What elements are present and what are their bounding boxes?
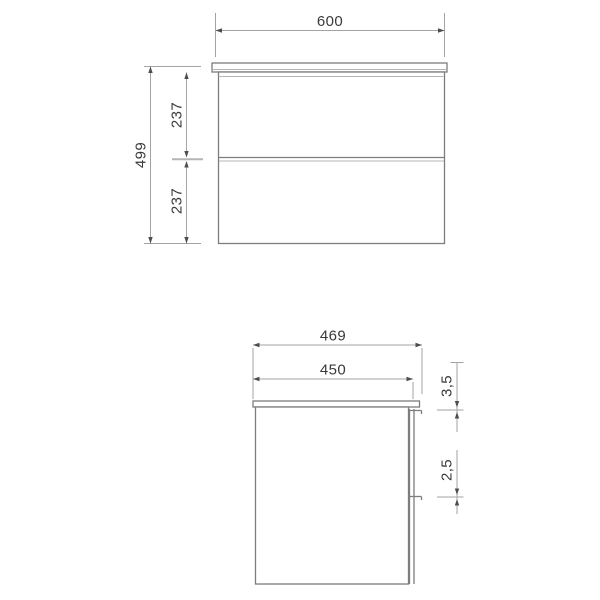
front-view: 600 499 237 237 <box>133 13 448 244</box>
dim-side-depth-body: 450 <box>253 362 413 400</box>
arrow-right-icon <box>438 28 445 32</box>
side-lower-drawer-edge <box>410 497 422 501</box>
side-depth-total-label: 469 <box>320 328 346 345</box>
dim-side-gap-top: 3,5 <box>437 362 464 432</box>
technical-drawing-page: 600 499 237 237 <box>0 0 600 600</box>
arrow-right-icon <box>416 343 423 347</box>
side-view: 469 450 3,5 2,5 <box>253 328 464 585</box>
dim-front-width: 600 <box>216 13 445 57</box>
arrow-left-icon <box>253 377 260 381</box>
dim-front-height: 499 <box>133 67 202 244</box>
drawing-canvas: 600 499 237 237 <box>0 0 600 600</box>
side-gap-drawers-label: 2,5 <box>439 459 456 481</box>
dim-front-drawers: 237 237 <box>169 73 204 244</box>
arrow-left-icon <box>216 28 223 32</box>
arrow-down-icon <box>148 237 152 244</box>
arrow-up-icon <box>455 499 459 506</box>
arrow-up-icon <box>184 161 188 168</box>
dim-side-gap-drawers: 2,5 <box>437 450 464 514</box>
arrow-up-icon <box>184 73 188 80</box>
front-countertop <box>212 63 447 72</box>
front-drawer-top-label: 237 <box>169 102 186 128</box>
arrow-up-icon <box>455 412 459 419</box>
arrow-right-icon <box>407 377 414 381</box>
front-height-label: 499 <box>133 142 150 168</box>
side-countertop <box>253 401 420 407</box>
front-width-label: 600 <box>317 13 343 30</box>
arrow-up-icon <box>148 67 152 74</box>
side-gap-top-label: 3,5 <box>439 375 456 397</box>
arrow-down-icon <box>455 489 459 496</box>
arrow-down-icon <box>184 151 188 158</box>
arrow-down-icon <box>455 401 459 408</box>
side-cabinet-body <box>256 407 409 584</box>
arrow-down-icon <box>184 237 188 244</box>
arrow-left-icon <box>253 343 260 347</box>
side-depth-body-label: 450 <box>320 362 346 379</box>
side-upper-drawer-edge <box>410 411 422 415</box>
front-drawer-bottom-label: 237 <box>169 188 186 214</box>
